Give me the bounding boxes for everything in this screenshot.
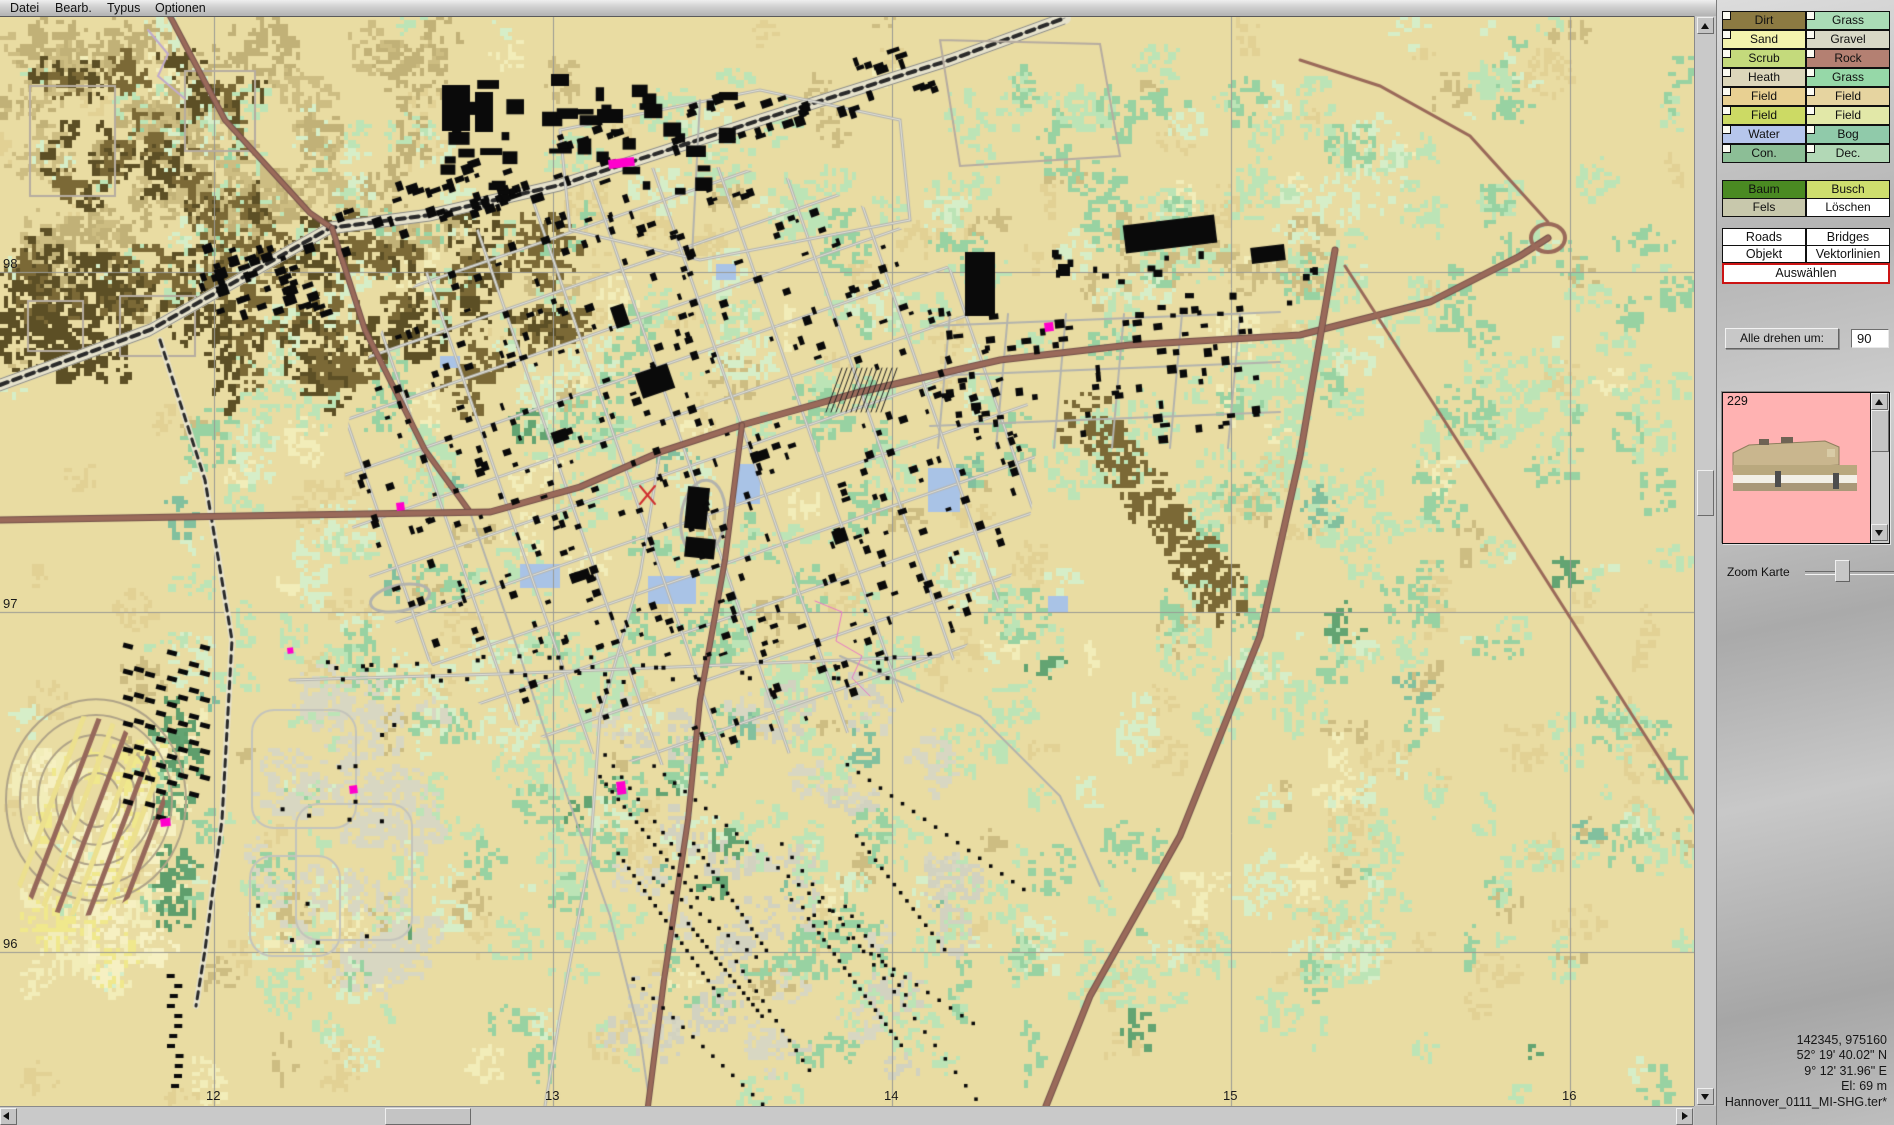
terrain-button-scrub[interactable]: Scrub <box>1722 49 1806 68</box>
terrain-button-rock[interactable]: Rock <box>1806 49 1890 68</box>
zoom-karte-label: Zoom Karte <box>1727 565 1790 579</box>
grid-label-x: 15 <box>1223 1088 1237 1103</box>
grid-label-y: 97 <box>3 596 17 611</box>
object-preview-panel: 229 <box>1722 392 1890 544</box>
texture-notch-icon <box>1807 126 1815 134</box>
menu-optionen[interactable]: Optionen <box>151 1 210 15</box>
grid-label-x: 16 <box>1562 1088 1576 1103</box>
status-readout: 142345, 975160 52° 19' 40.02" N 9° 12' 3… <box>1717 1033 1887 1110</box>
terrain-button-bog[interactable]: Bog <box>1806 125 1890 144</box>
arrow-up-icon <box>1701 23 1709 29</box>
texture-notch-icon <box>1723 107 1731 115</box>
texture-notch-icon <box>1807 31 1815 39</box>
arrow-left-icon <box>3 1112 9 1120</box>
grid-label-x: 14 <box>884 1088 898 1103</box>
auswaehlen-button[interactable]: Auswählen <box>1722 263 1890 284</box>
terrain-button-dec[interactable]: Dec. <box>1806 144 1890 163</box>
menu-typus[interactable]: Typus <box>103 1 144 15</box>
map-horizontal-scrollbar[interactable] <box>0 1106 1694 1125</box>
terrain-button-field[interactable]: Field <box>1806 87 1890 106</box>
texture-notch-icon <box>1807 145 1815 153</box>
paint-button-busch[interactable]: Busch <box>1806 180 1890 199</box>
vertical-scroll-thumb[interactable] <box>1697 470 1714 516</box>
grid-label-x: 12 <box>206 1088 220 1103</box>
texture-notch-icon <box>1723 50 1731 58</box>
grid-label-y: 96 <box>3 936 17 951</box>
tool-button-roads[interactable]: Roads <box>1722 228 1806 246</box>
status-map-coords: 142345, 975160 <box>1717 1033 1887 1048</box>
status-filename: Hannover_0111_MI-SHG.ter* <box>1717 1095 1887 1110</box>
terrain-button-grass[interactable]: Grass <box>1806 11 1890 30</box>
arrow-up-icon <box>1875 399 1883 405</box>
texture-notch-icon <box>1723 88 1731 96</box>
paint-button-loeschen[interactable]: Löschen <box>1806 198 1890 217</box>
map-view: 1213141516989796 <box>0 16 1694 1106</box>
preview-scroll-down-button[interactable] <box>1871 524 1888 541</box>
preview-scroll-up-button[interactable] <box>1871 393 1888 410</box>
texture-notch-icon <box>1807 107 1815 115</box>
status-latitude: 52° 19' 40.02" N <box>1717 1048 1887 1063</box>
status-elevation: El: 69 m <box>1717 1079 1887 1094</box>
texture-notch-icon <box>1723 69 1731 77</box>
terrain-button-con[interactable]: Con. <box>1722 144 1806 163</box>
scroll-left-button[interactable] <box>0 1108 17 1125</box>
texture-notch-icon <box>1723 12 1731 20</box>
terrain-button-water[interactable]: Water <box>1722 125 1806 144</box>
terrain-button-gravel[interactable]: Gravel <box>1806 30 1890 49</box>
terrain-button-field[interactable]: Field <box>1722 87 1806 106</box>
menu-bar: Datei Bearb. Typus Optionen <box>0 0 1716 17</box>
map-canvas[interactable] <box>0 16 1694 1106</box>
scroll-down-button[interactable] <box>1697 1088 1714 1105</box>
paint-button-fels[interactable]: Fels <box>1722 198 1806 217</box>
scroll-up-button[interactable] <box>1697 17 1714 34</box>
rotate-all-button[interactable]: Alle drehen um: <box>1725 328 1839 349</box>
terrain-button-field[interactable]: Field <box>1806 106 1890 125</box>
grid-label-y: 98 <box>3 256 17 271</box>
preview-scroll-thumb[interactable] <box>1871 410 1889 452</box>
texture-notch-icon <box>1807 69 1815 77</box>
grid-label-x: 13 <box>545 1088 559 1103</box>
zoom-slider-thumb[interactable] <box>1835 560 1850 582</box>
arrow-down-icon <box>1701 1094 1709 1100</box>
menu-bearb[interactable]: Bearb. <box>51 1 96 15</box>
texture-notch-icon <box>1723 126 1731 134</box>
status-longitude: 9° 12' 31.96" E <box>1717 1064 1887 1079</box>
horizontal-scroll-thumb[interactable] <box>385 1108 471 1125</box>
terrain-button-dirt[interactable]: Dirt <box>1722 11 1806 30</box>
arrow-down-icon <box>1875 530 1883 536</box>
tool-button-vektorlinien[interactable]: Vektorlinien <box>1806 245 1890 263</box>
texture-notch-icon <box>1723 145 1731 153</box>
terrain-button-grass[interactable]: Grass <box>1806 68 1890 87</box>
paint-button-baum[interactable]: Baum <box>1722 180 1806 199</box>
texture-notch-icon <box>1807 50 1815 58</box>
object-preview-image <box>1729 431 1857 511</box>
rotate-angle-input[interactable] <box>1851 329 1889 348</box>
preview-scrollbar[interactable] <box>1870 393 1889 543</box>
scroll-right-button[interactable] <box>1676 1108 1693 1125</box>
terrain-button-sand[interactable]: Sand <box>1722 30 1806 49</box>
arrow-right-icon <box>1682 1112 1688 1120</box>
texture-notch-icon <box>1807 88 1815 96</box>
texture-notch-icon <box>1723 31 1731 39</box>
map-vertical-scrollbar[interactable] <box>1694 16 1716 1106</box>
scrollbar-corner <box>1694 1106 1716 1125</box>
terrain-button-heath[interactable]: Heath <box>1722 68 1806 87</box>
menu-datei[interactable]: Datei <box>6 1 43 15</box>
texture-notch-icon <box>1807 12 1815 20</box>
tool-button-bridges[interactable]: Bridges <box>1806 228 1890 246</box>
tool-button-objekt[interactable]: Objekt <box>1722 245 1806 263</box>
object-number: 229 <box>1727 394 1748 408</box>
terrain-button-field[interactable]: Field <box>1722 106 1806 125</box>
control-panel: DirtGrassSandGravelScrubRockHeathGrassFi… <box>1716 0 1894 1125</box>
